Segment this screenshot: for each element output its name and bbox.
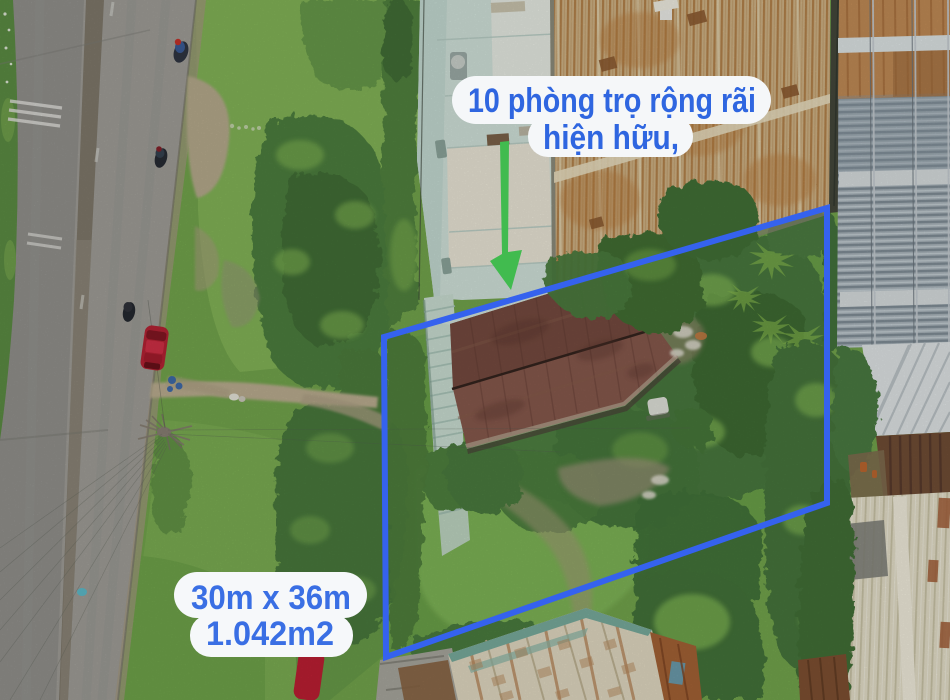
svg-text:10 phòng trọ rộng rãi: 10 phòng trọ rộng rãi bbox=[468, 82, 756, 120]
svg-text:1.042m2: 1.042m2 bbox=[206, 615, 334, 653]
svg-text:hiện hữu,: hiện hữu, bbox=[543, 119, 679, 157]
svg-text:30m x 36m: 30m x 36m bbox=[191, 579, 351, 617]
